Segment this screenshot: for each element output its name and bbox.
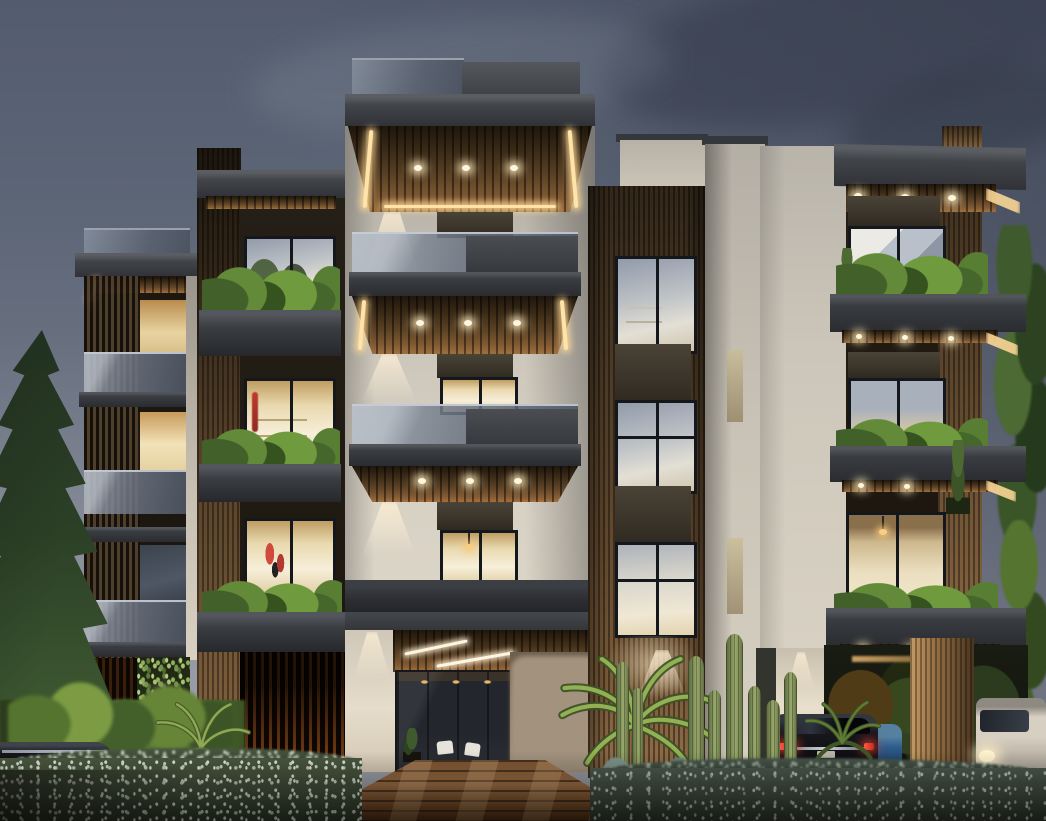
left-wing-window-floor3: [138, 300, 188, 354]
left-wing-window-floor1-dark: [138, 545, 188, 603]
left-tower-canopy-soffit: [206, 196, 336, 209]
canopy-downlight: [510, 165, 518, 171]
right-wing-planter-slab-mid: [830, 446, 1026, 482]
left-wing-balcony-slab-3: [79, 392, 194, 407]
bottom-vignette: [0, 751, 1046, 821]
soffit-downlight: [904, 484, 910, 489]
balcony-privacy-panel: [466, 409, 578, 447]
canopy-led-strip-bottom: [384, 205, 556, 208]
lobby-ceiling-lights: [411, 680, 501, 684]
pendant-lamp: [882, 516, 884, 530]
left-wing-glass-balustrade-2: [84, 470, 188, 514]
canopy-downlight: [948, 195, 956, 201]
side-window-sliver: [727, 538, 743, 614]
center-balcony-slab-upper: [349, 272, 581, 296]
right-tree-upper: [985, 225, 1046, 555]
left-wing-roof-fascia: [75, 253, 197, 277]
tall-planter-plant: [946, 440, 970, 514]
window-red-artwork: [252, 392, 258, 432]
pendant-lamp: [468, 533, 470, 545]
soffit-downlight: [948, 336, 954, 341]
wood-tower-window-mid: [615, 400, 697, 494]
architectural-rendering-scene: [0, 0, 1046, 821]
canopy-downlight: [462, 165, 470, 171]
canopy-downlight: [513, 320, 521, 326]
stone-spandrel: [615, 344, 691, 402]
planter-soffit: [842, 480, 998, 492]
soffit-downlight: [418, 478, 426, 484]
center-large-canopy-soffit: [348, 126, 592, 212]
balcony-planter-box: [199, 464, 341, 502]
right-wing-planter-slab-top: [830, 294, 1026, 332]
center-canopy-fascia: [345, 94, 595, 126]
soffit-downlight: [514, 478, 522, 484]
stone-spandrel: [848, 196, 940, 226]
left-wing-glass-balustrade-3: [84, 352, 188, 396]
canopy-downlight: [464, 320, 472, 326]
white-volume-top: [620, 140, 706, 188]
left-wing-lit-side-edge: [186, 276, 197, 660]
stone-spandrel: [437, 354, 513, 378]
canopy-downlight: [414, 165, 422, 171]
entrance-slab: [345, 580, 595, 616]
wood-tower-window-low: [615, 542, 697, 638]
soffit-downlight: [902, 335, 908, 340]
wood-tower-window-top: [615, 256, 697, 354]
center-low-soffit: [352, 466, 578, 502]
left-wing-window-floor2: [138, 412, 188, 470]
planter-soffit: [842, 330, 998, 343]
left-tower-canopy: [197, 170, 345, 198]
side-window-sliver: [727, 350, 743, 422]
window-red-decor: [262, 537, 291, 578]
canopy-downlight: [416, 320, 424, 326]
left-wing-balcony-slab-1: [79, 642, 194, 657]
balcony-planter-box: [197, 612, 345, 652]
suv-windows: [980, 710, 1029, 732]
center-balcony-slab-lower: [349, 444, 581, 466]
balcony-planter-box: [199, 310, 341, 356]
balcony-privacy-panel: [466, 236, 578, 274]
stone-spandrel: [437, 502, 513, 530]
soffit-downlight: [858, 483, 864, 488]
stone-spandrel: [848, 352, 940, 378]
soffit-downlight: [466, 478, 474, 484]
left-wing-balcony-slab-2: [79, 527, 194, 542]
stone-spandrel: [615, 486, 691, 544]
soffit-downlight: [856, 334, 862, 339]
